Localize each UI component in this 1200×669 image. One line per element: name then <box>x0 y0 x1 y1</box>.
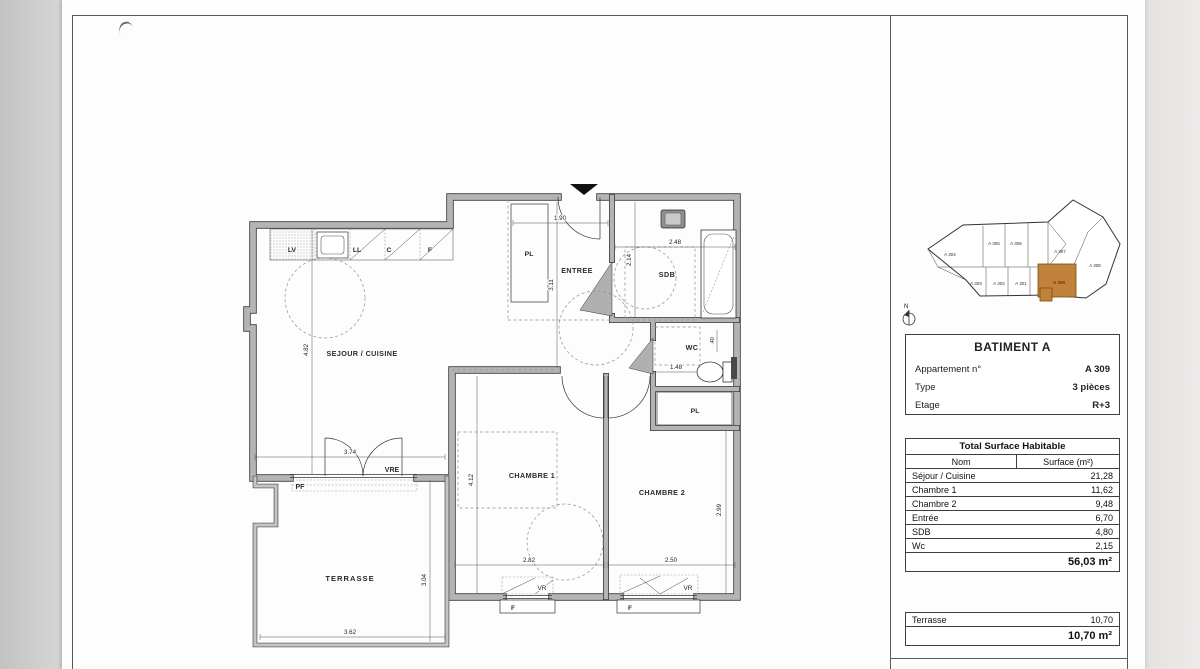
surface-table-title: Total Surface Habitable <box>906 439 1119 455</box>
floorplan-drawing: LV LL C F <box>240 180 770 658</box>
kitchen-label-lv: LV <box>288 247 297 254</box>
dim-chambre2-width: 2.50 <box>665 557 678 564</box>
label-vre: VRE <box>385 467 400 474</box>
dim-sdb-width: 2.48 <box>669 239 682 246</box>
field-appartement-label: Appartement n° <box>915 364 981 375</box>
unit-label-a307: A 307 <box>1054 249 1066 254</box>
building-title: BATIMENT A <box>906 335 1119 360</box>
duct-shaft <box>731 357 737 379</box>
table-row: Entrée 6,70 <box>906 511 1119 525</box>
field-etage-value: R+3 <box>1092 400 1110 411</box>
row-name: Wc <box>912 541 925 551</box>
table-row: Chambre 2 9,48 <box>906 497 1119 511</box>
frame-right-line <box>1127 15 1128 669</box>
row-value: 6,70 <box>1095 513 1113 523</box>
room-label-pl-entree: PL <box>525 251 534 258</box>
dim-sejour-height: 4.82 <box>303 343 310 356</box>
dim-terrasse-height: 3.04 <box>421 573 428 586</box>
field-etage: Etage R+3 <box>906 396 1119 414</box>
row-name: Entrée <box>912 513 939 523</box>
unit-label-a304: A 304 <box>944 252 956 257</box>
field-type-label: Type <box>915 382 936 393</box>
field-etage-label: Etage <box>915 400 940 411</box>
unit-label-a301: A 301 <box>1015 281 1027 286</box>
row-value: 11,62 <box>1091 485 1113 495</box>
unit-label-a305: A 305 <box>988 241 1000 246</box>
surface-col-surface: Surface (m²) <box>1017 455 1119 468</box>
field-type-value: 3 pièces <box>1073 382 1111 393</box>
kitchen-counter: LV LL C F <box>270 229 453 260</box>
dim-terrasse-width: 3.62 <box>344 629 357 636</box>
frame-left-line <box>72 15 73 669</box>
row-name: Chambre 2 <box>912 499 957 509</box>
panel-bottom-line <box>890 658 1128 659</box>
shutter-label-vr2: VR <box>684 585 693 592</box>
unit-label-a306: A 306 <box>1010 241 1022 246</box>
kitchen-label-ll: LL <box>353 247 361 254</box>
row-value: 10,70 <box>1090 615 1113 625</box>
surface-col-name: Nom <box>906 455 1017 468</box>
unit-label-a309: A 309 <box>1053 280 1066 285</box>
dim-wc-depth: .40 <box>710 337 716 345</box>
dim-entree-width: 1.90 <box>554 215 567 222</box>
window-label-f2: F <box>628 605 632 612</box>
surface-table: Total Surface Habitable Nom Surface (m²)… <box>905 438 1120 572</box>
dim-sejour-width: 3.74 <box>344 449 357 456</box>
room-label-sdb: SDB <box>659 270 675 279</box>
unit-label-a303: A 303 <box>970 281 982 286</box>
row-name: SDB <box>912 527 931 537</box>
table-row: Séjour / Cuisine 21,28 <box>906 469 1119 483</box>
terrace-french-doors <box>290 438 417 491</box>
field-appartement-value: A 309 <box>1085 364 1110 375</box>
surface-table-header: Nom Surface (m²) <box>906 455 1119 469</box>
apartment-walls <box>247 197 737 645</box>
frame-top-line <box>72 15 1128 16</box>
dim-chambre1-width: 2.82 <box>523 557 536 564</box>
row-value: 21,28 <box>1090 471 1113 481</box>
table-row: Chambre 1 11,62 <box>906 483 1119 497</box>
terrace-total: 10,70 m² <box>906 627 1119 645</box>
dim-wc-width: 1.48 <box>670 364 683 371</box>
page-left-margin <box>0 0 62 669</box>
table-row: SDB 4,80 <box>906 525 1119 539</box>
kitchen-label-c: C <box>387 247 392 254</box>
row-name: Chambre 1 <box>912 485 957 495</box>
surface-total: 56,03 m² <box>906 553 1119 571</box>
room-label-wc: WC <box>686 343 699 352</box>
room-label-pl-chambre: PL <box>691 408 700 415</box>
dim-chambre1-height: 4.12 <box>468 473 475 486</box>
page-right-margin <box>1145 0 1200 669</box>
entrance-arrow-icon <box>570 184 598 195</box>
building-info-box: BATIMENT A Appartement n° A 309 Type 3 p… <box>905 334 1120 415</box>
north-compass-icon: N <box>903 304 915 325</box>
kitchen-label-f: F <box>428 247 432 254</box>
window-label-f1: F <box>511 605 515 612</box>
shutter-label-vr1: VR <box>538 585 547 592</box>
row-value: 2,15 <box>1095 541 1113 551</box>
room-label-chambre2: CHAMBRE 2 <box>639 488 685 497</box>
room-label-chambre1: CHAMBRE 1 <box>509 471 555 480</box>
toilet <box>697 362 723 382</box>
label-pf: PF <box>296 484 306 491</box>
table-row: Terrasse 10,70 <box>906 613 1119 627</box>
field-type: Type 3 pièces <box>906 378 1119 396</box>
north-label: N <box>904 304 908 310</box>
panel-divider-line <box>890 15 891 669</box>
terrace-table: Terrasse 10,70 10,70 m² <box>905 612 1120 646</box>
unit-label-a302: A 302 <box>993 281 1005 286</box>
room-label-terrasse: TERRASSE <box>325 574 374 583</box>
building-key-plan: A 304 A 305 A 306 A 307 A 308 A 303 A 30… <box>898 192 1130 332</box>
dim-sdb-height: 2.14 <box>626 253 633 266</box>
row-name: Terrasse <box>912 615 947 625</box>
room-label-sejour: SEJOUR / CUISINE <box>326 349 397 358</box>
table-row: Wc 2,15 <box>906 539 1119 553</box>
row-value: 9,48 <box>1095 499 1113 509</box>
floorplan-page: LV LL C F <box>0 0 1200 669</box>
unit-label-a308: A 308 <box>1089 263 1101 268</box>
field-appartement: Appartement n° A 309 <box>906 360 1119 378</box>
row-value: 4,80 <box>1095 527 1113 537</box>
room-label-entree: ENTREE <box>561 266 593 275</box>
dim-chambre2-height: 2.99 <box>716 503 723 516</box>
row-name: Séjour / Cuisine <box>912 471 976 481</box>
dim-entree-height: 3.11 <box>548 279 555 291</box>
